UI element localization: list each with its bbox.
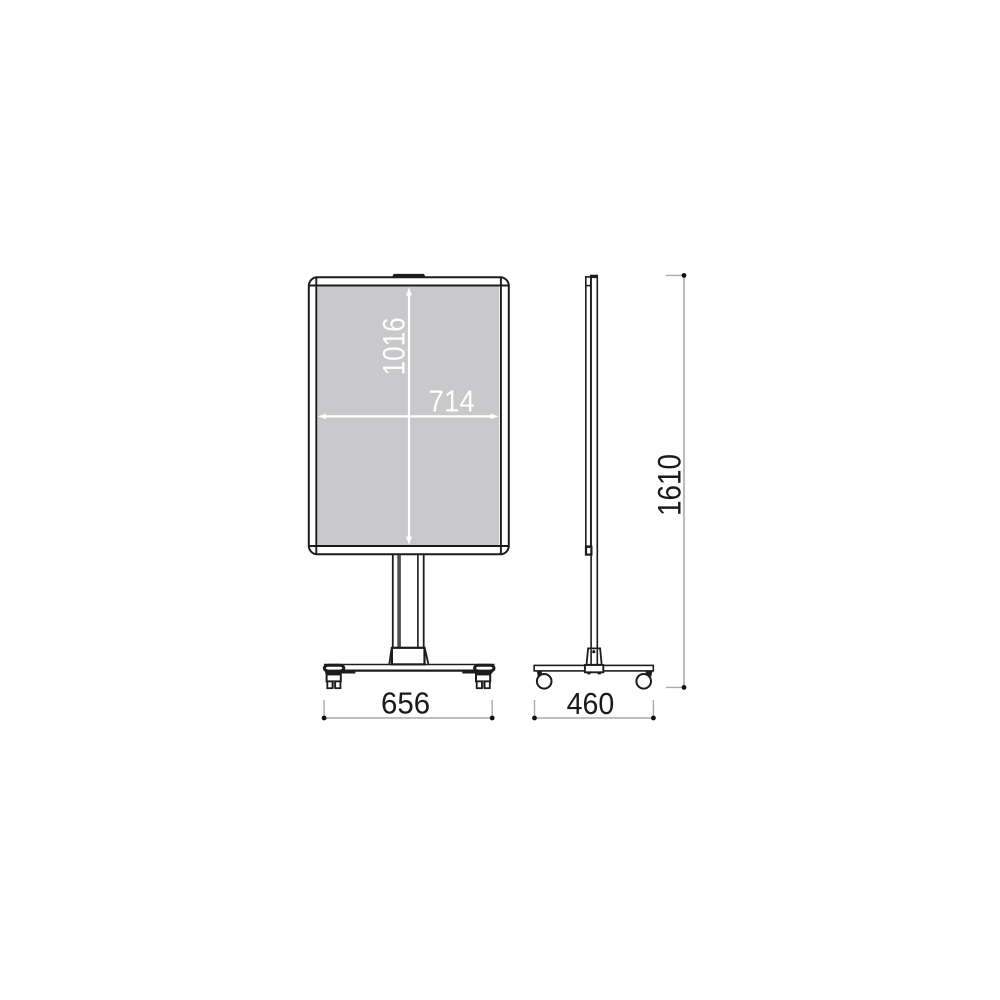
svg-text:1016: 1016: [377, 317, 412, 375]
svg-text:714: 714: [429, 386, 475, 419]
svg-text:656: 656: [381, 687, 430, 721]
svg-text:1610: 1610: [653, 454, 688, 516]
svg-text:460: 460: [567, 687, 615, 721]
